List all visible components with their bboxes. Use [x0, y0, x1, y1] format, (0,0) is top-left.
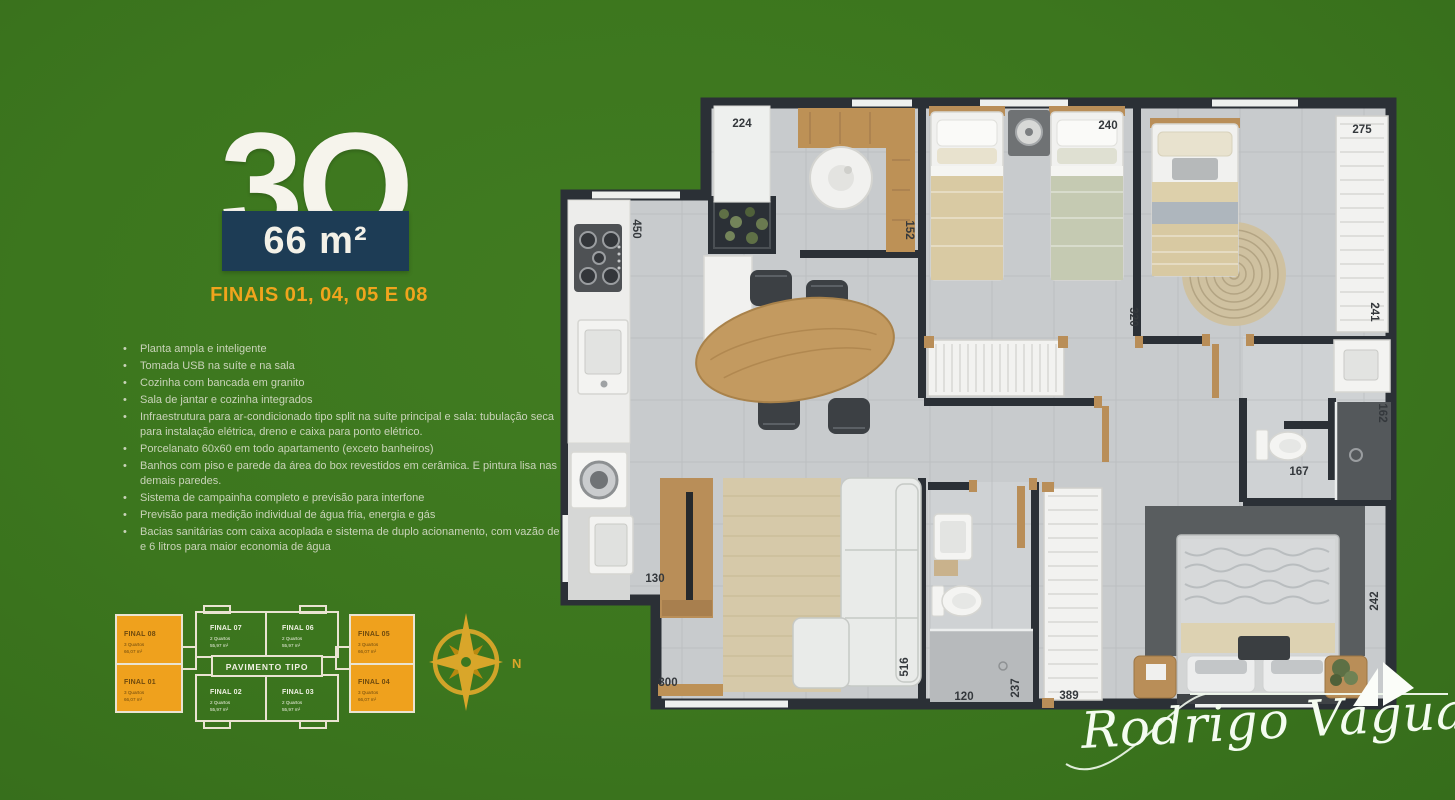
feature-list: Planta ampla e inteligente Tomada USB na…: [118, 342, 570, 557]
dim-label-224: 224: [732, 118, 752, 130]
dim-label-167: 167: [1289, 466, 1308, 478]
unit-final-06-box: [266, 612, 338, 657]
svg-text:3 Quartos: 3 Quartos: [358, 690, 379, 695]
round-table: [810, 147, 872, 209]
dim-label-450: 450: [630, 219, 642, 238]
unit-mini-map: PAVIMENTO TIPO FINAL 08 3 Quartos 66,07 …: [105, 602, 427, 734]
feature-item: Bacias sanitárias com caixa acoplada e s…: [118, 525, 570, 555]
nightstand-bedroom2: [1008, 110, 1050, 156]
unit-final-03: FINAL 03 2 Quartos 55,97 m²: [282, 689, 314, 712]
floor-plan: 224 240 275 167 130 300 120 389 450 152 …: [560, 90, 1430, 715]
feature-item: Cozinha com bancada em granito: [118, 376, 570, 391]
svg-text:55,97 m²: 55,97 m²: [210, 643, 229, 648]
dim-label-320: 320: [1127, 307, 1139, 326]
bed-single-1: [929, 106, 1005, 280]
tv-panel: [660, 478, 713, 618]
finais-label: FINAIS 01, 04, 05 E 08: [158, 284, 480, 307]
feature-item: Infraestrutura para ar-condicionado tipo…: [118, 410, 570, 440]
suite-toilet: [1256, 430, 1307, 460]
svg-text:66,07 m²: 66,07 m²: [358, 649, 377, 654]
svg-text:66,07 m²: 66,07 m²: [124, 697, 143, 702]
dim-label-242: 242: [1369, 591, 1381, 610]
bed-single-2: [1049, 106, 1125, 280]
pavimento-label: PAVIMENTO TIPO: [226, 662, 309, 672]
svg-text:FINAL 08: FINAL 08: [124, 631, 156, 638]
svg-text:55,97 m²: 55,97 m²: [282, 707, 301, 712]
svg-text:55,97 m²: 55,97 m²: [210, 707, 229, 712]
feature-item: Sistema de campainha completo e previsão…: [118, 491, 570, 506]
svg-text:2 Quartos: 2 Quartos: [282, 636, 303, 641]
unit-final-03-box: [266, 675, 338, 721]
svg-text:2 Quartos: 2 Quartos: [210, 700, 231, 705]
feature-item: Porcelanato 60x60 em todo apartamento (e…: [118, 442, 570, 457]
svg-text:55,97 m²: 55,97 m²: [282, 643, 301, 648]
kitchen-sink: [578, 320, 628, 394]
unit-final-07: FINAL 07 2 Quartos 55,97 m²: [210, 625, 242, 648]
dim-label-130: 130: [645, 573, 664, 585]
svg-text:66,07 m²: 66,07 m²: [358, 697, 377, 702]
washing-machine: [571, 452, 627, 508]
north-label: N: [512, 656, 521, 671]
svg-text:3 Quartos: 3 Quartos: [124, 690, 145, 695]
area-badge: 66 m²: [222, 211, 409, 271]
dim-label-300: 300: [658, 677, 677, 689]
signature-name: Rodrigo Vaguary: [1079, 679, 1455, 760]
feature-item: Tomada USB na suíte e na sala: [118, 359, 570, 374]
svg-text:FINAL 03: FINAL 03: [282, 689, 314, 696]
svg-text:FINAL 01: FINAL 01: [124, 679, 156, 686]
compass-center: [461, 657, 471, 667]
unit-final-06: FINAL 06 2 Quartos 55,97 m²: [282, 625, 314, 648]
dim-label-162: 162: [1376, 403, 1388, 422]
laundry-tank: [589, 516, 633, 574]
svg-text:3 Quartos: 3 Quartos: [124, 642, 145, 647]
marketing-sheet: 3Q 66 m² FINAIS 01, 04, 05 E 08 Planta a…: [0, 0, 1455, 800]
dim-label-152: 152: [903, 220, 915, 239]
svg-text:2 Quartos: 2 Quartos: [282, 700, 303, 705]
signature: Rodrigo Vaguary: [1000, 640, 1455, 800]
svg-text:FINAL 05: FINAL 05: [358, 631, 390, 638]
wardrobe-bedroom2: [924, 336, 1068, 396]
unit-final-02-box: [196, 675, 266, 721]
svg-text:66,07 m²: 66,07 m²: [124, 649, 143, 654]
svg-text:FINAL 07: FINAL 07: [210, 625, 242, 632]
dim-label-240: 240: [1098, 120, 1117, 132]
feature-item: Banhos com piso e parede da área do box …: [118, 459, 570, 489]
svg-text:FINAL 02: FINAL 02: [210, 689, 242, 696]
unit-final-07-box: [196, 612, 266, 657]
toilet: [932, 586, 982, 616]
wardrobe-bedroom3: [1336, 116, 1388, 332]
svg-text:FINAL 04: FINAL 04: [358, 679, 390, 686]
area-value: 66 m²: [263, 220, 367, 263]
dim-label-241: 241: [1368, 302, 1380, 322]
unit-final-02: FINAL 02 2 Quartos 55,97 m²: [210, 689, 242, 712]
dim-label-516: 516: [899, 657, 911, 676]
grill-panel: [708, 196, 776, 254]
feature-item: Planta ampla e inteligente: [118, 342, 570, 357]
bed-single-3: [1150, 118, 1240, 276]
dim-label-275: 275: [1352, 124, 1372, 136]
feature-item: Previsão para medição individual de água…: [118, 508, 570, 523]
compass-rose: N: [420, 600, 540, 730]
svg-text:2 Quartos: 2 Quartos: [210, 636, 231, 641]
dim-label-120: 120: [954, 691, 973, 703]
svg-text:FINAL 06: FINAL 06: [282, 625, 314, 632]
cooktop: [574, 224, 622, 292]
feature-item: Sala de jantar e cozinha integrados: [118, 393, 570, 408]
svg-text:3 Quartos: 3 Quartos: [358, 642, 379, 647]
